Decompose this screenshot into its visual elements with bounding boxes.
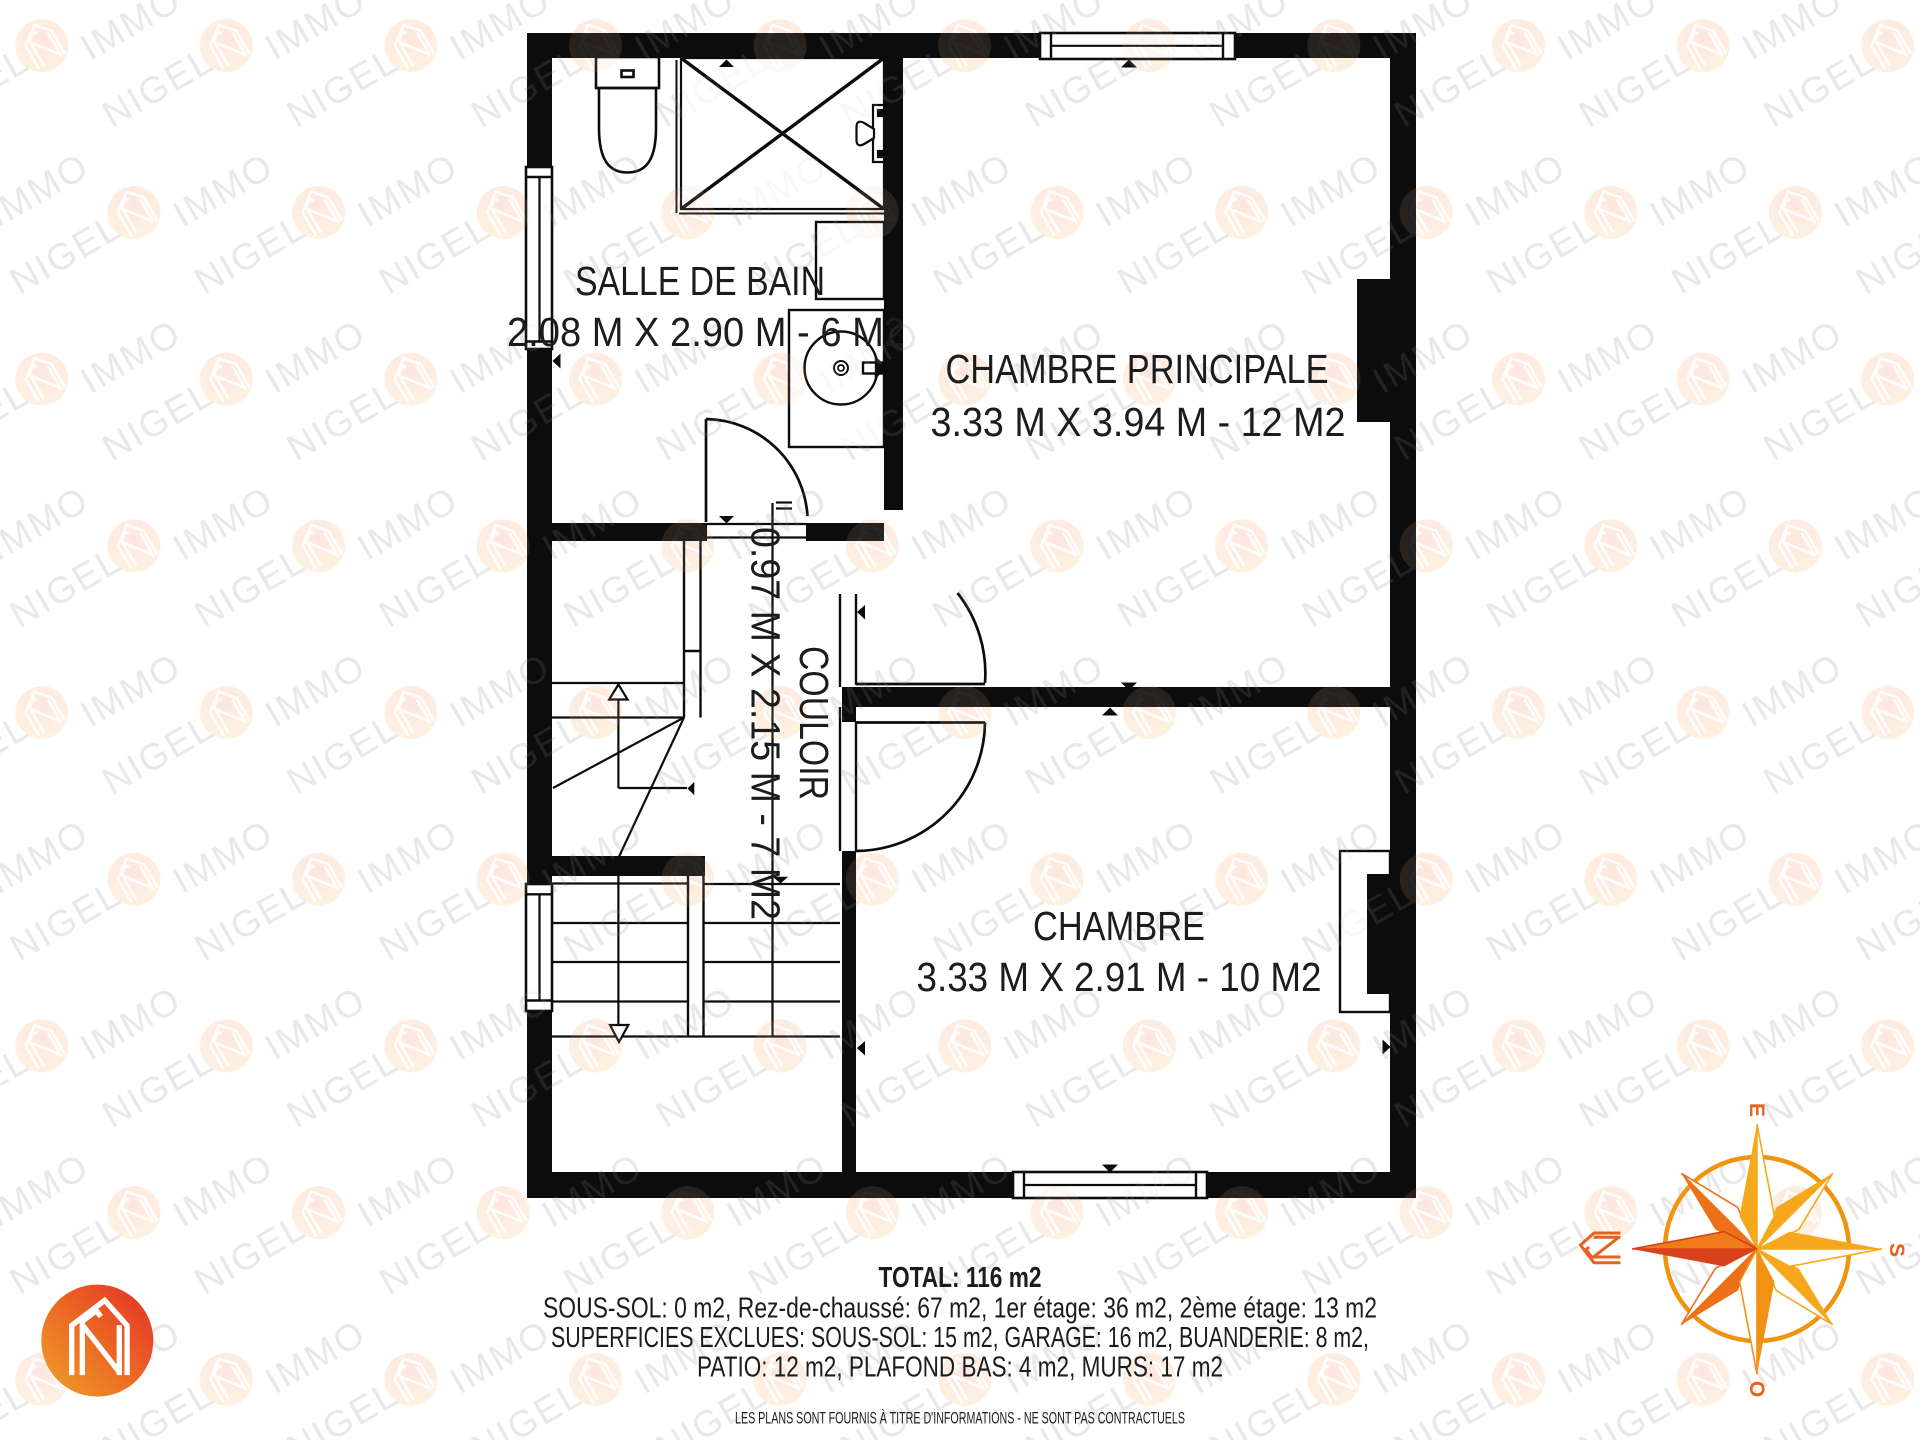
svg-text:SOUS-SOL: 0 m2, Rez-de-chaussé: SOUS-SOL: 0 m2, Rez-de-chaussé: 67 m2, 1…	[543, 1293, 1377, 1325]
svg-text:S: S	[1885, 1243, 1908, 1257]
svg-text:SALLE DE BAIN: SALLE DE BAIN	[575, 258, 825, 304]
svg-text:PATIO: 12 m2, PLAFOND BAS: 4 m: PATIO: 12 m2, PLAFOND BAS: 4 m2, MURS: 1…	[697, 1352, 1223, 1384]
svg-text:COULOIR: COULOIR	[791, 646, 837, 800]
svg-text:0.97 M X 2.15 M - 7 M2: 0.97 M X 2.15 M - 7 M2	[743, 527, 789, 920]
svg-text:O: O	[1745, 1381, 1768, 1397]
svg-text:3.33 M X 2.91 M - 10 M2: 3.33 M X 2.91 M - 10 M2	[917, 954, 1322, 1000]
svg-text:SUPERFICIES EXCLUES: SOUS-SOL:: SUPERFICIES EXCLUES: SOUS-SOL: 15 m2, GA…	[551, 1322, 1369, 1354]
svg-text:CHAMBRE: CHAMBRE	[1033, 903, 1205, 949]
svg-text:E: E	[1745, 1103, 1768, 1117]
svg-text:LES PLANS SONT FOURNIS À TITRE: LES PLANS SONT FOURNIS À TITRE D'INFORMA…	[735, 1409, 1185, 1428]
svg-text:3.33 M X 3.94 M - 12 M2: 3.33 M X 3.94 M - 12 M2	[931, 399, 1346, 445]
svg-text:CHAMBRE PRINCIPALE: CHAMBRE PRINCIPALE	[946, 346, 1329, 392]
svg-text:2.08 M X 2.90 M - 6 M2: 2.08 M X 2.90 M - 6 M2	[507, 309, 905, 355]
svg-text:TOTAL: 116 m2: TOTAL: 116 m2	[879, 1262, 1042, 1294]
